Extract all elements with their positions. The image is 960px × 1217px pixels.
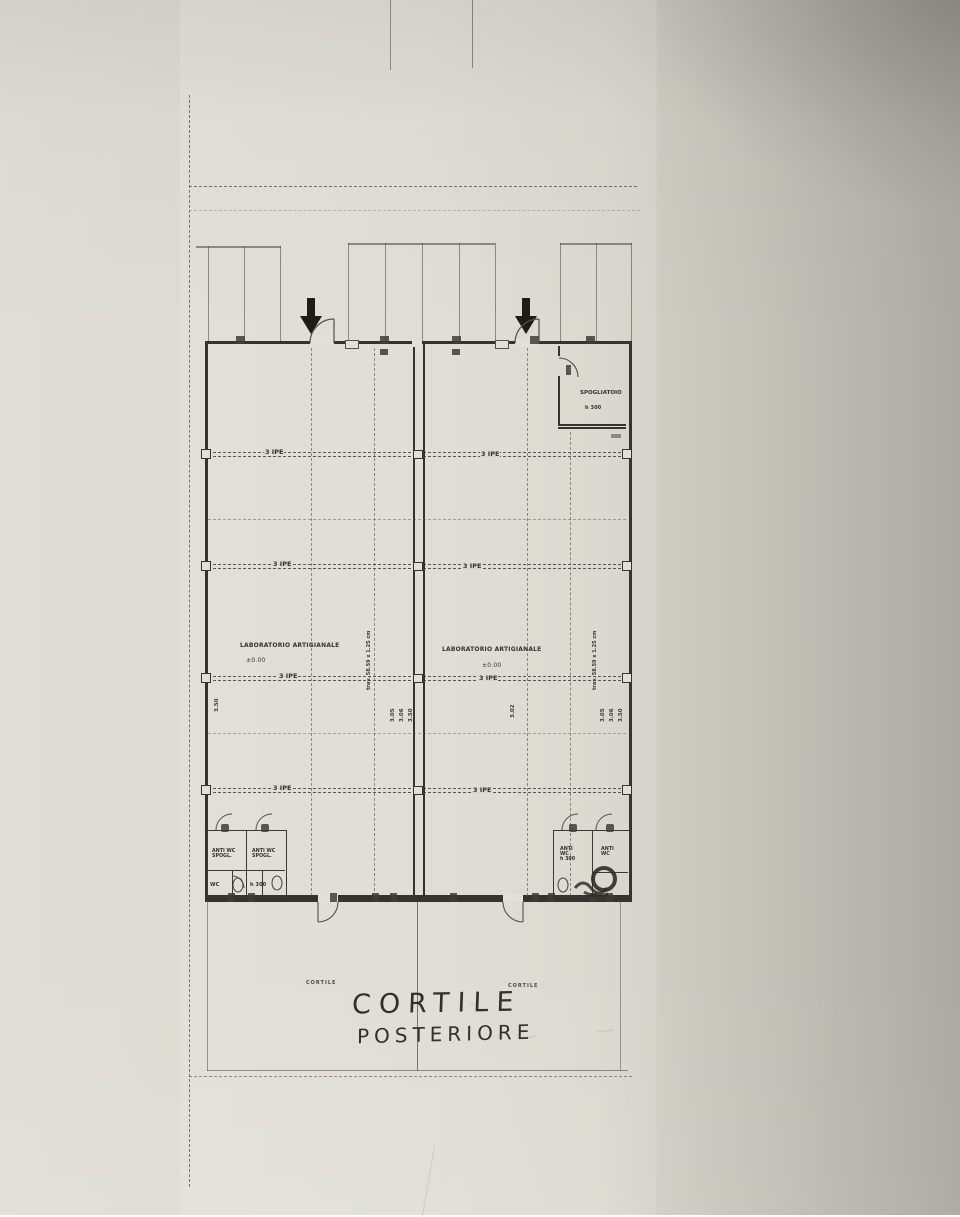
door-swing-arc	[216, 814, 232, 830]
plan-annotations	[0, 0, 960, 1215]
pen-scribble	[593, 868, 615, 890]
door-swing-arc	[256, 814, 272, 830]
toilet-fixture	[558, 878, 568, 892]
door-swing-arc	[318, 902, 338, 922]
toilet-fixture	[233, 878, 243, 892]
door-swing-arc	[559, 358, 578, 377]
entrance-arrow-icon	[515, 298, 537, 334]
door-swing-arc	[503, 902, 523, 922]
door-swing-arc	[562, 814, 578, 830]
toilet-fixture	[272, 876, 282, 890]
door-swing-arc	[596, 814, 612, 830]
entrance-arrow-icon	[300, 298, 322, 334]
scanned-floor-plan-photo: 3 IPE 3 IPE 3 IPE 3 IPE 3 IPE 3 IPE 3 IP…	[0, 0, 960, 1215]
